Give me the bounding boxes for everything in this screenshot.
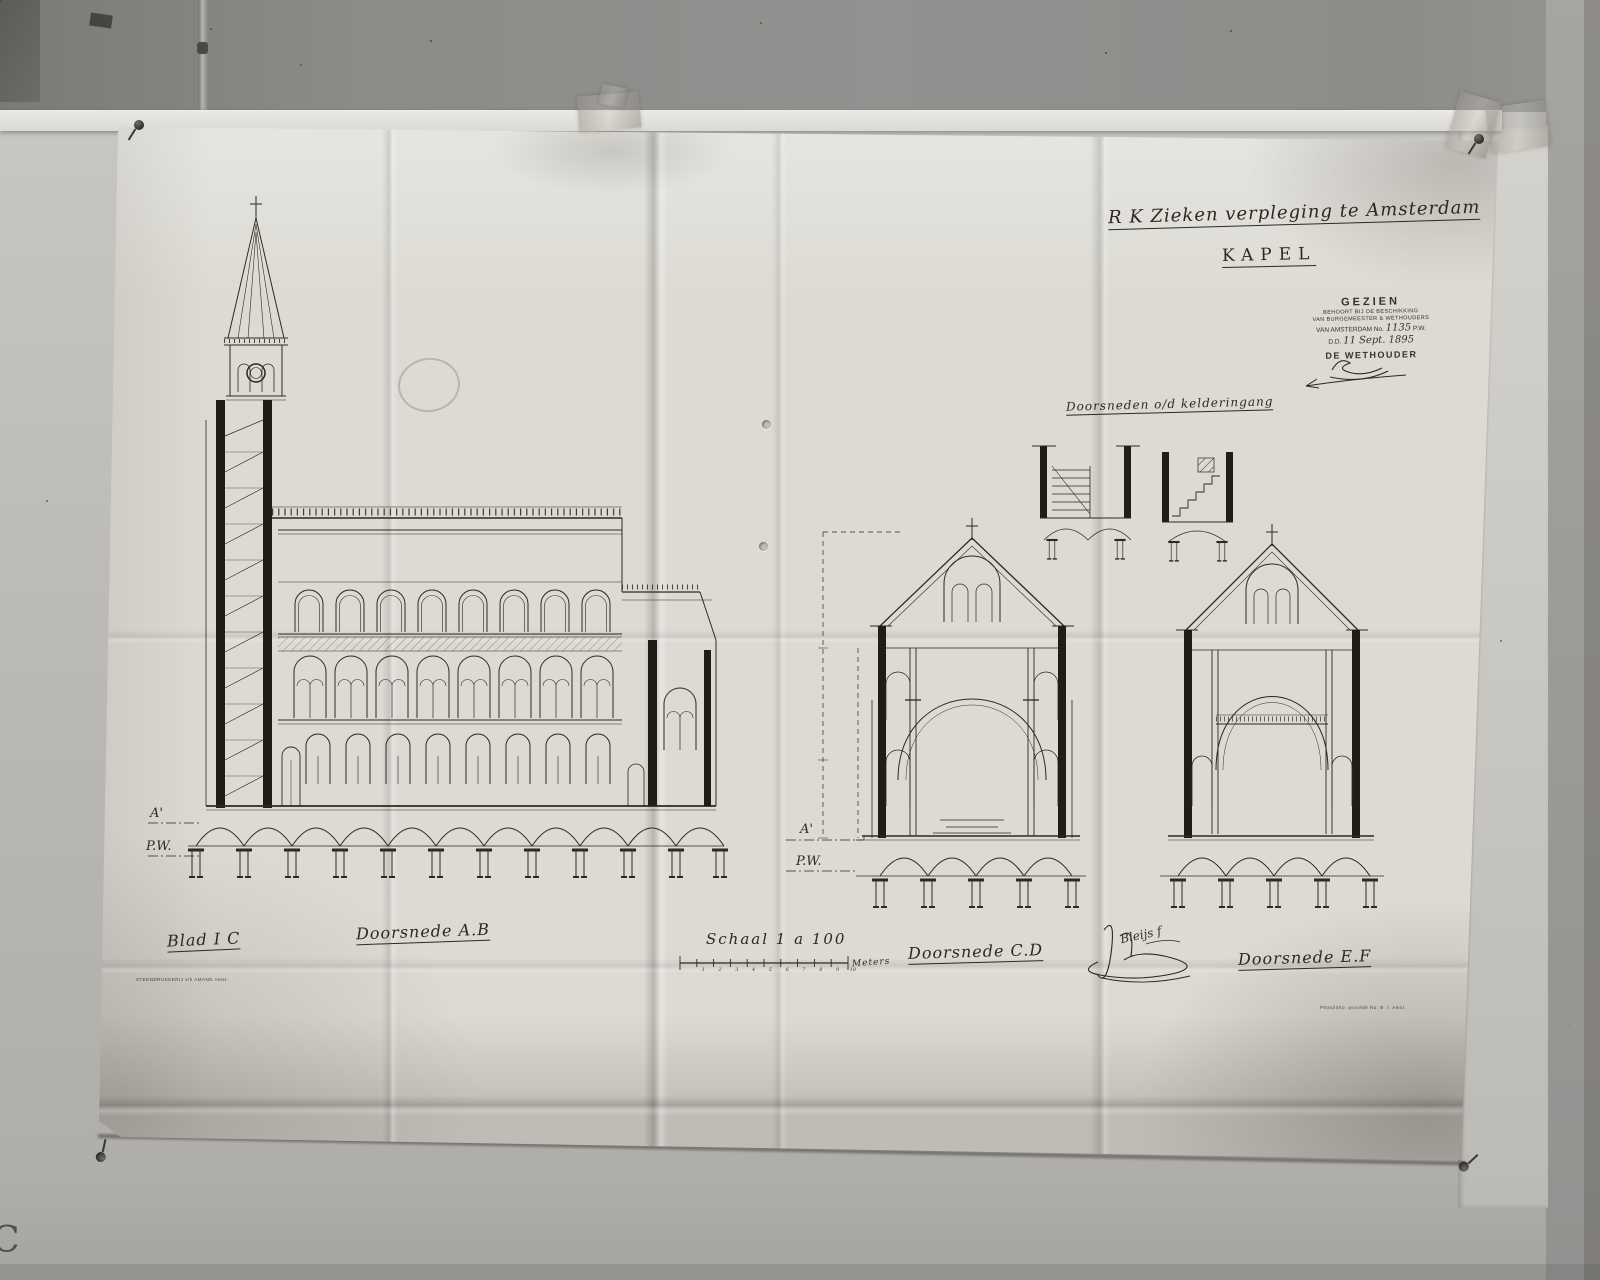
- photo-stage: C: [0, 0, 1600, 1280]
- picture-rail: [0, 110, 1502, 131]
- label-doorsnede-ef: Doorsnede E.F: [1238, 946, 1372, 969]
- foundation-left-drawing: [188, 828, 728, 877]
- wall-bottom-edge: [0, 1264, 1600, 1280]
- kelder-section-1-drawing: [1032, 446, 1140, 559]
- push-pin: [1468, 134, 1488, 154]
- scale-tick: 8: [806, 967, 823, 973]
- datum-label-pw: P.W.: [796, 854, 821, 869]
- photo-corner-mark: C: [0, 1220, 20, 1261]
- drawing-sheet: R K Zieken verpleging te Amsterdam KAPEL…: [0, 0, 1600, 1280]
- scale-tick: 4: [738, 967, 755, 973]
- datum-label-a: A': [150, 806, 163, 821]
- stamp-date: 11 Sept. 1895: [1343, 334, 1414, 346]
- stamp-date-line: D.D. 11 Sept. 1895: [1294, 334, 1448, 348]
- approval-stamp: GEZIEN BEHOORT BIJ DE BESCHIKKING VAN BU…: [1293, 295, 1448, 362]
- annex-section-drawing: [622, 587, 716, 806]
- tower-section-drawing: [206, 400, 272, 808]
- scale-tick: 7: [789, 967, 806, 973]
- wall-right-edge: [1584, 0, 1600, 1280]
- scale-tick: 2: [705, 967, 722, 973]
- photolitho-imprint: Photolitho. procédé No. B. I. Amst.: [1320, 1005, 1406, 1010]
- datum-label-pw: P.W.: [146, 839, 171, 854]
- label-doorsnede-cd: Doorsnede C.D: [908, 940, 1044, 963]
- scale-tick: 3: [722, 967, 739, 973]
- scale-tick: 6: [772, 967, 789, 973]
- push-pin: [87, 1139, 113, 1165]
- wall-shadow-corner: [0, 0, 40, 102]
- scale-tick-numbers: 1 2 3 4 5 6 7 8 9 10: [688, 967, 856, 973]
- stamp-document-number: 1135: [1386, 322, 1412, 333]
- wall-upper: [0, 0, 1600, 112]
- label-blad: Blad I C: [167, 928, 241, 950]
- kelder-section-2-drawing: [1162, 452, 1233, 561]
- stamp-signature: [1306, 361, 1406, 388]
- wall-pipe: [198, 0, 208, 114]
- spire-drawing: [224, 196, 288, 400]
- datum-label-a: A': [800, 822, 813, 837]
- printer-imprint: STEENDRUKKERIJ v/h AMAND Amst.: [136, 977, 229, 982]
- label-doorsnede-ab: Doorsnede A.B: [356, 920, 491, 944]
- dust-specks: [0, 0, 2, 2]
- scale-tick: 9: [822, 967, 839, 973]
- push-pin: [128, 120, 148, 140]
- drawing-linework: [0, 0, 1600, 1280]
- scale-tick: 10: [839, 967, 856, 973]
- scale-tick: 1: [688, 967, 705, 973]
- section-cd-drawing: [818, 518, 1086, 907]
- pipe-bracket: [197, 42, 208, 54]
- drawing-subtitle: KAPEL: [1222, 244, 1317, 266]
- section-ef-drawing: [1160, 524, 1384, 907]
- label-schaal: Schaal 1 a 100: [706, 930, 846, 948]
- scale-tick: 5: [755, 967, 772, 973]
